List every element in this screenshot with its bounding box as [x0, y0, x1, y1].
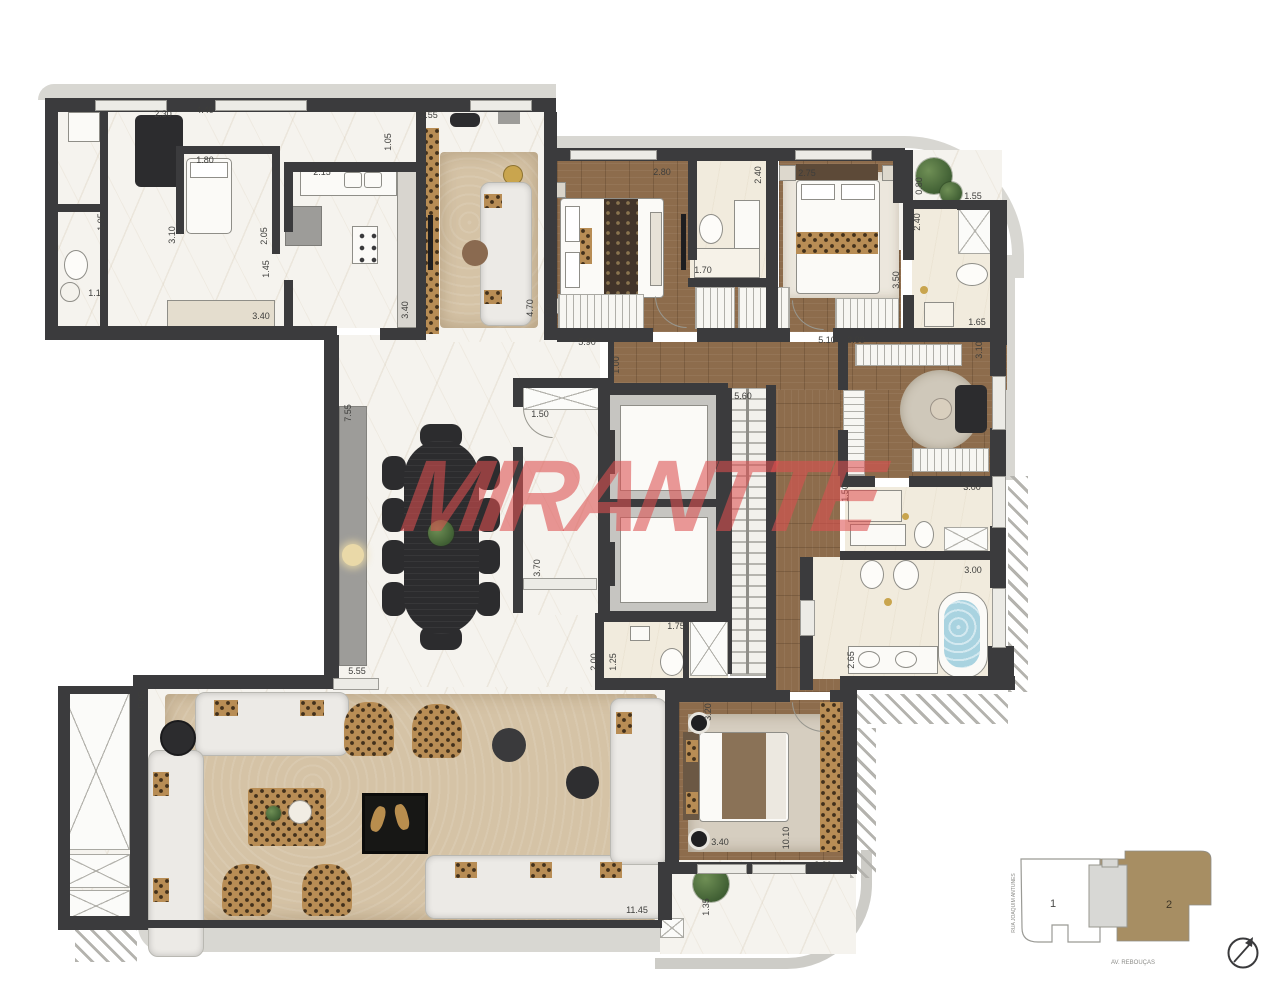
dimension-label: 1.05: [383, 133, 393, 151]
master-sink: [895, 651, 917, 668]
window: [795, 150, 872, 160]
window: [523, 578, 597, 590]
wall: [838, 430, 848, 476]
suite2-pillow: [841, 184, 875, 200]
suite1-cushion: [580, 228, 592, 264]
side-table-dark: [566, 766, 599, 799]
wall: [688, 278, 768, 287]
bath3-shaft: [944, 527, 988, 551]
wall: [130, 686, 148, 930]
dimension-label: 2.55: [420, 110, 438, 120]
dimension-label: 3.40: [711, 837, 729, 847]
coffee-table-tray: [288, 800, 312, 824]
closet-rack: [855, 344, 962, 366]
vanity-desk: [955, 385, 987, 433]
wall: [595, 613, 728, 622]
wall: [838, 342, 848, 390]
wall: [324, 335, 339, 688]
dimension-label: 1.55: [964, 191, 982, 201]
wall: [58, 686, 70, 928]
wall: [893, 150, 913, 203]
wall: [513, 378, 608, 388]
wall: [284, 280, 293, 328]
suite1-pillow: [565, 206, 580, 242]
living-pillow: [153, 878, 169, 902]
window: [215, 100, 307, 111]
key-plan-unit1-shape: [1021, 859, 1100, 942]
wall: [176, 146, 184, 234]
wall: [58, 916, 148, 930]
wall: [45, 98, 58, 340]
wall: [284, 162, 293, 232]
suite2-pillow: [801, 184, 835, 200]
dimension-label: 4.70: [525, 299, 535, 317]
dimension-label: 5.05: [137, 691, 147, 709]
dimension-label: 1.50: [840, 484, 850, 502]
dimension-label: 2.75: [798, 168, 816, 178]
dining-chair: [476, 456, 500, 490]
suite1-bench: [650, 212, 662, 286]
suite1-pillow: [565, 252, 580, 288]
sink-service: [60, 282, 80, 302]
dimension-label: 3.10: [974, 341, 984, 359]
dimension-label: 2.15: [313, 167, 331, 177]
wall: [990, 342, 1006, 376]
suite3-blanket-fold: [766, 733, 786, 819]
coffee-machine: [498, 112, 520, 124]
bidet: [860, 560, 884, 589]
suite1-tv: [681, 214, 686, 270]
wall: [272, 146, 280, 254]
wall: [665, 690, 790, 702]
sideboard-lamp: [342, 544, 364, 566]
tv-sofa-pillow: [484, 194, 502, 208]
dimension-label: 1.80: [196, 155, 214, 165]
toilet-bath2: [956, 263, 988, 286]
wall: [595, 613, 604, 690]
ledge-top-right-wing: [556, 136, 888, 148]
wc-shaft: [690, 620, 728, 676]
armchair-leopard: [344, 702, 394, 756]
key-plan-core-notch: [1102, 859, 1118, 867]
ottoman-dark: [492, 728, 526, 762]
washer: [68, 112, 100, 142]
dimension-label: 11.45: [626, 905, 648, 915]
sconce-gold: [902, 513, 909, 520]
shaft-bath2: [958, 208, 992, 254]
key-plan-core: [1089, 865, 1127, 927]
elevator-door: [610, 430, 615, 474]
hall-wardrobe: [738, 287, 790, 329]
suite1-bed-throw: [604, 199, 638, 295]
dimension-label: 3.00: [847, 335, 865, 345]
bathtub-water: [944, 600, 980, 668]
window: [992, 588, 1006, 648]
wall: [990, 428, 1006, 476]
bath3-counter: [850, 524, 906, 546]
dimension-label: 1.70: [694, 265, 712, 275]
elevator-cab: [620, 405, 708, 491]
bath3-shower: [848, 490, 902, 522]
wall: [416, 112, 426, 328]
dimension-label: 1.50: [531, 409, 549, 419]
suite1-wardrobe: [558, 294, 644, 330]
suite3-blanket: [722, 733, 766, 819]
dimension-label: 3.50: [544, 304, 554, 322]
armchair-leopard: [222, 864, 272, 916]
wall: [914, 200, 962, 209]
dimension-label: 3.00: [964, 565, 982, 575]
wall: [133, 675, 335, 689]
coffee-table-leopard: [248, 788, 326, 846]
coffee-table-plant: [266, 806, 281, 821]
street-label-bottom: AV. REBOUÇAS: [1111, 960, 1155, 966]
dimension-label: 2.40: [912, 213, 922, 231]
dimension-label: 1.00: [611, 356, 621, 374]
floor-balcony3: [660, 860, 856, 954]
living-pillow: [300, 700, 324, 716]
dimension-label: 2.80: [653, 167, 671, 177]
wall: [140, 920, 662, 928]
master-bath-door: [800, 600, 815, 636]
wall: [45, 204, 108, 212]
dimension-label: 2.30: [154, 109, 172, 119]
dimension-label: 2.40: [753, 166, 763, 184]
balcony3-planter: [660, 918, 684, 938]
closet-rack: [912, 448, 989, 472]
dimension-label: 3.00: [963, 482, 981, 492]
tv-sofa-pillow: [484, 290, 502, 304]
suite2-wardrobe: [835, 298, 899, 330]
dimension-label: 3.50: [891, 271, 901, 289]
wall: [665, 690, 679, 874]
vanity-stool: [930, 398, 952, 420]
dining-chair: [382, 498, 406, 532]
living-pillow: [600, 862, 622, 878]
toilet-master: [893, 560, 919, 590]
dimension-label: 3.10: [167, 226, 177, 244]
dining-centerpiece: [428, 520, 454, 546]
sconce-gold: [920, 286, 928, 294]
wall: [909, 476, 1005, 487]
armchair-leopard: [412, 704, 462, 758]
dimension-label: 5.90: [578, 337, 596, 347]
dimension-label: 2.00: [589, 653, 599, 671]
bath3-toilet: [914, 521, 934, 548]
suite2-bed-runner: [796, 232, 878, 254]
dining-chair: [476, 582, 500, 616]
sconce-gold: [884, 598, 892, 606]
toilet-bath1: [699, 214, 723, 244]
window: [470, 100, 532, 111]
wall: [697, 328, 790, 342]
dimension-label: 2.65: [846, 651, 856, 669]
window: [992, 376, 1006, 430]
pouf: [462, 240, 488, 266]
nightstand: [779, 165, 796, 181]
dimension-label: 3.70: [532, 559, 542, 577]
living-pillow: [455, 862, 477, 878]
dining-chair: [476, 540, 500, 574]
dimension-label: 3.20: [703, 703, 713, 721]
sideboard: [339, 406, 367, 666]
window: [570, 150, 657, 160]
wc-sink: [630, 626, 650, 641]
dimension-label: 5.55: [348, 666, 366, 676]
wall: [840, 551, 1005, 560]
dimension-label: 7.55: [343, 404, 353, 422]
hatch-below-master-bath: [852, 694, 1008, 724]
street-label-left: RUA JOAQUIM ANTUNES: [1011, 873, 1017, 933]
wall-light: [688, 828, 710, 850]
hatch-bottom-left: [75, 930, 137, 962]
living-pillow: [214, 700, 238, 716]
dining-chair: [382, 540, 406, 574]
wall: [840, 676, 1015, 690]
dimension-label: 5.10: [818, 335, 836, 345]
dining-chair: [382, 582, 406, 616]
wall: [176, 146, 280, 154]
wall: [728, 388, 732, 674]
dining-chair: [382, 456, 406, 490]
wall: [100, 112, 108, 210]
kitchen-sink: [344, 172, 362, 188]
wall: [658, 862, 672, 920]
wall: [58, 686, 134, 694]
ledge-bottom: [138, 926, 662, 952]
bath2-shower: [924, 302, 954, 327]
window: [697, 864, 747, 874]
master-sink: [858, 651, 880, 668]
suite3-pillow: [686, 792, 698, 814]
stair-rail: [746, 388, 749, 674]
terrace-planter: [62, 692, 130, 850]
dimension-label: 2.05: [259, 227, 269, 245]
living-pillow: [530, 862, 552, 878]
floor-plan: 2.304.401.802.152.551.051.953.102.051.45…: [0, 0, 1280, 998]
dimension-label: 1.75: [667, 621, 685, 631]
armchair-leopard: [302, 864, 352, 916]
wall: [45, 326, 337, 340]
toilet-service: [64, 250, 88, 280]
dimension-label: 1.45: [261, 260, 271, 278]
elevator-door: [610, 542, 615, 586]
elevator-cab: [620, 517, 708, 603]
wall: [557, 328, 653, 342]
floor-kitchen-passage: [426, 326, 544, 342]
dimension-label: 5.60: [734, 391, 752, 401]
kitchen-sink: [364, 172, 382, 188]
wall: [595, 678, 776, 690]
hall-wardrobe: [695, 287, 735, 329]
wall: [380, 328, 426, 340]
wall: [284, 162, 424, 172]
window: [333, 678, 379, 690]
key-plan: 1 2 RUA JOAQUIM ANTUNES AV. REBOUÇAS: [1005, 845, 1255, 975]
key-plan-unit1-label: 1: [1050, 898, 1056, 910]
dimension-label: 1.25: [608, 653, 618, 671]
dimension-label: 3.30: [814, 860, 832, 870]
wall: [843, 690, 857, 874]
wc-toilet: [660, 648, 684, 676]
living-pillow: [616, 712, 632, 734]
wall: [766, 385, 776, 682]
wall: [766, 148, 778, 340]
wall: [513, 378, 523, 407]
dimension-label: 3.40: [400, 301, 410, 319]
wall: [513, 447, 523, 613]
hall-closet: [523, 386, 601, 410]
suite3-pillow: [686, 740, 698, 762]
dimension-label: 1.35: [701, 898, 711, 916]
dimension-label: 3.40: [252, 311, 270, 321]
dimension-label: 1.95: [96, 213, 106, 231]
north-arrow-icon: [1222, 930, 1264, 972]
dimension-label: 10.10: [781, 827, 791, 850]
window: [752, 864, 806, 874]
wall: [688, 160, 697, 260]
tv-screen: [428, 215, 433, 270]
dimension-label: 1.10: [88, 288, 106, 298]
stove: [352, 226, 378, 264]
terrace-planter: [62, 854, 130, 888]
stairwell: [730, 388, 768, 676]
side-table-round: [160, 720, 196, 756]
key-plan-unit2-label: 2: [1166, 899, 1172, 911]
living-pillow: [153, 772, 169, 796]
dining-chair: [476, 498, 500, 532]
dimension-label: 4.40: [196, 105, 214, 115]
window: [992, 476, 1006, 528]
dimension-label: 1.65: [968, 317, 986, 327]
dimension-label: 0.80: [914, 177, 924, 195]
tv-console: [450, 113, 480, 127]
wall: [990, 200, 1007, 345]
